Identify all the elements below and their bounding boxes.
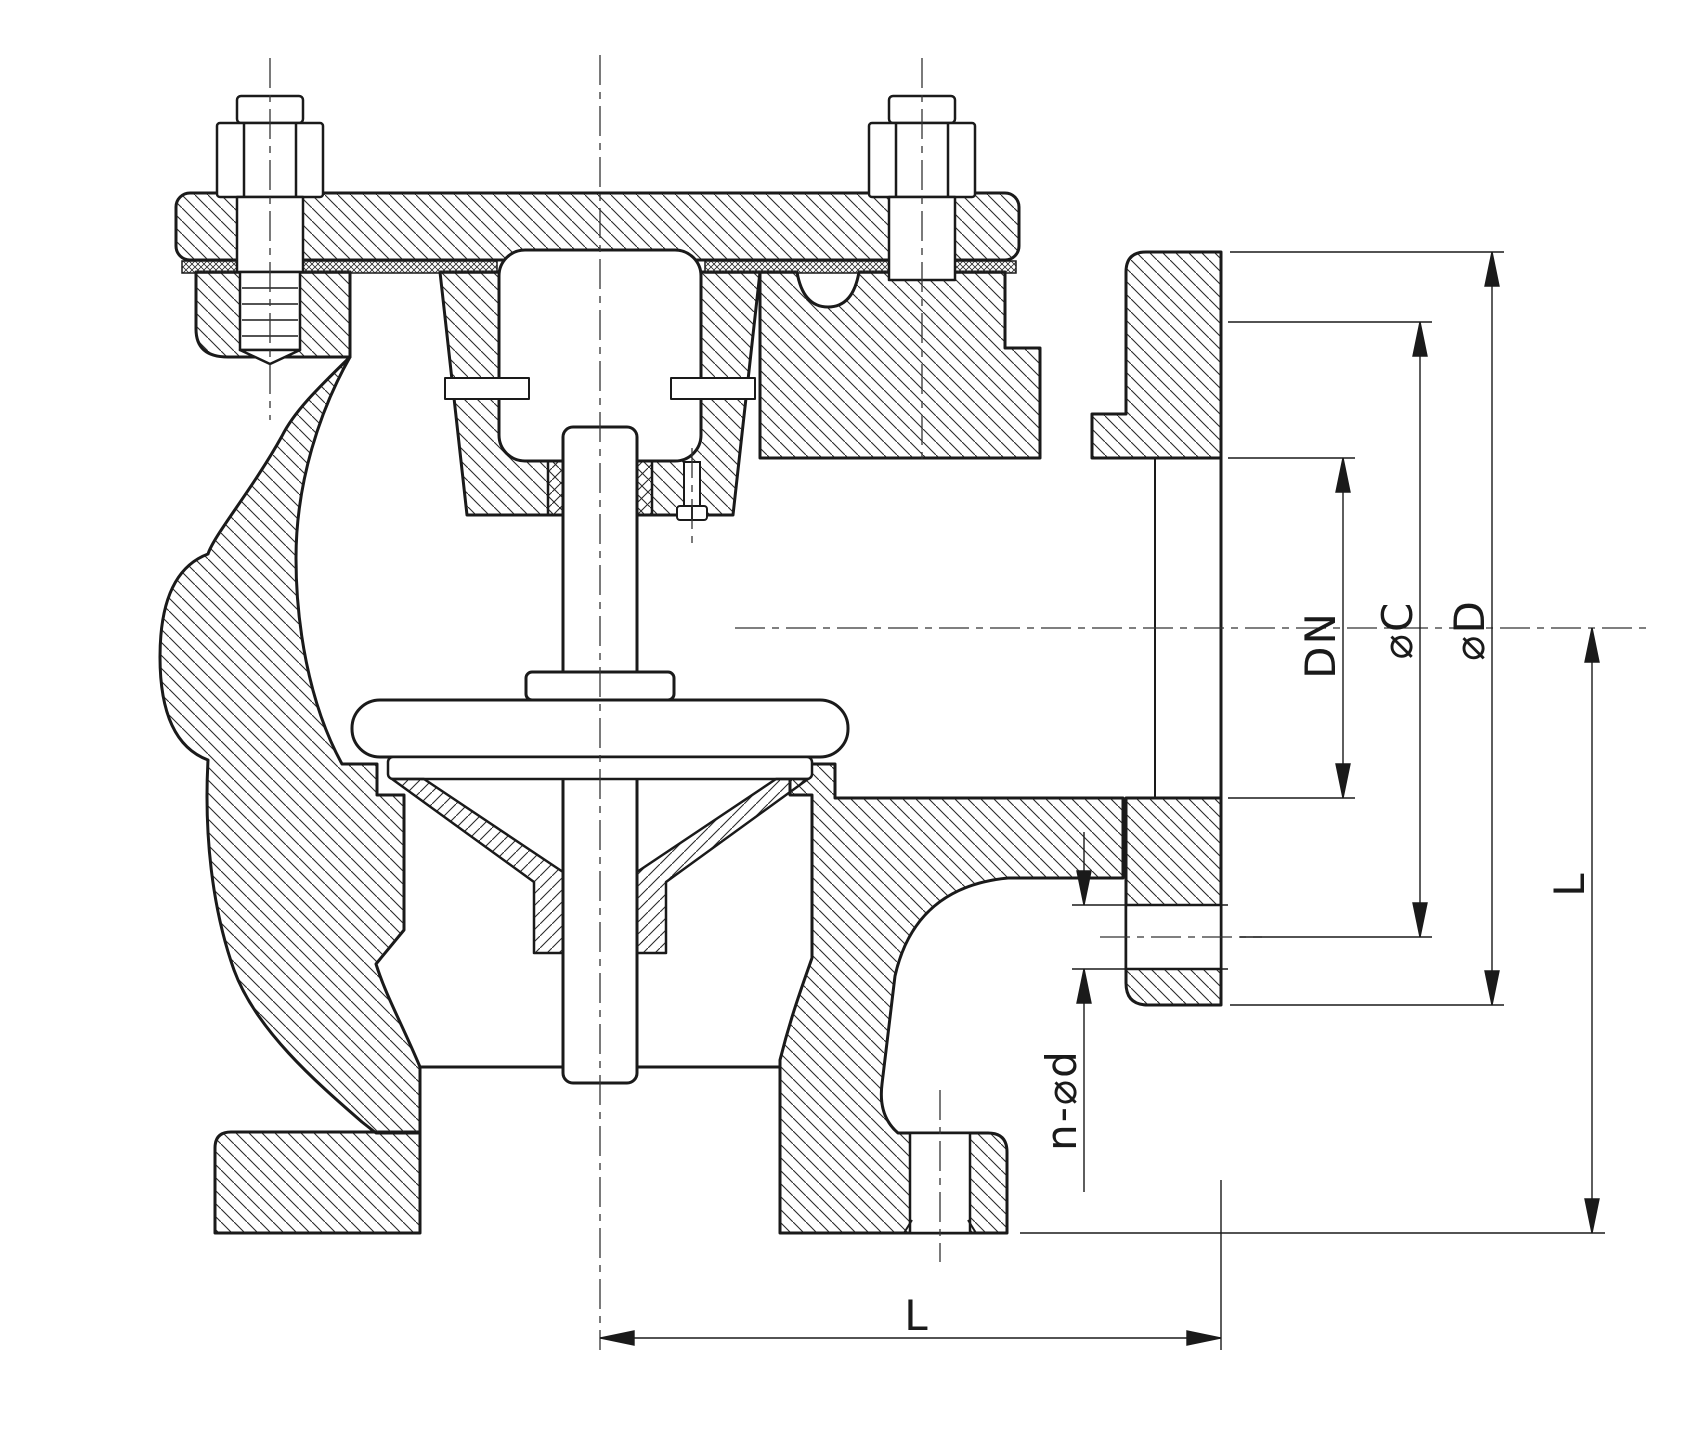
valve-section-drawing: DN ⌀C ⌀D L n-⌀d L [0,0,1703,1438]
label-dn: DN [1296,611,1345,679]
label-n-phi-d: n-⌀d [1037,1049,1086,1151]
outlet-flange-lower [1126,798,1221,1005]
label-phi-c: ⌀C [1373,601,1422,660]
drawing-canvas: DN ⌀C ⌀D L n-⌀d L [0,0,1703,1438]
gasket-left [182,261,497,273]
gasket-right [705,261,1016,273]
label-phi-d: ⌀D [1445,599,1494,661]
label-l-vertical: L [1545,871,1594,896]
funnel-window-right [671,378,755,399]
funnel-window-left [445,378,529,399]
base-foot [215,1132,420,1233]
label-l-horizontal: L [904,1291,929,1340]
body-top-wall [760,272,1040,458]
